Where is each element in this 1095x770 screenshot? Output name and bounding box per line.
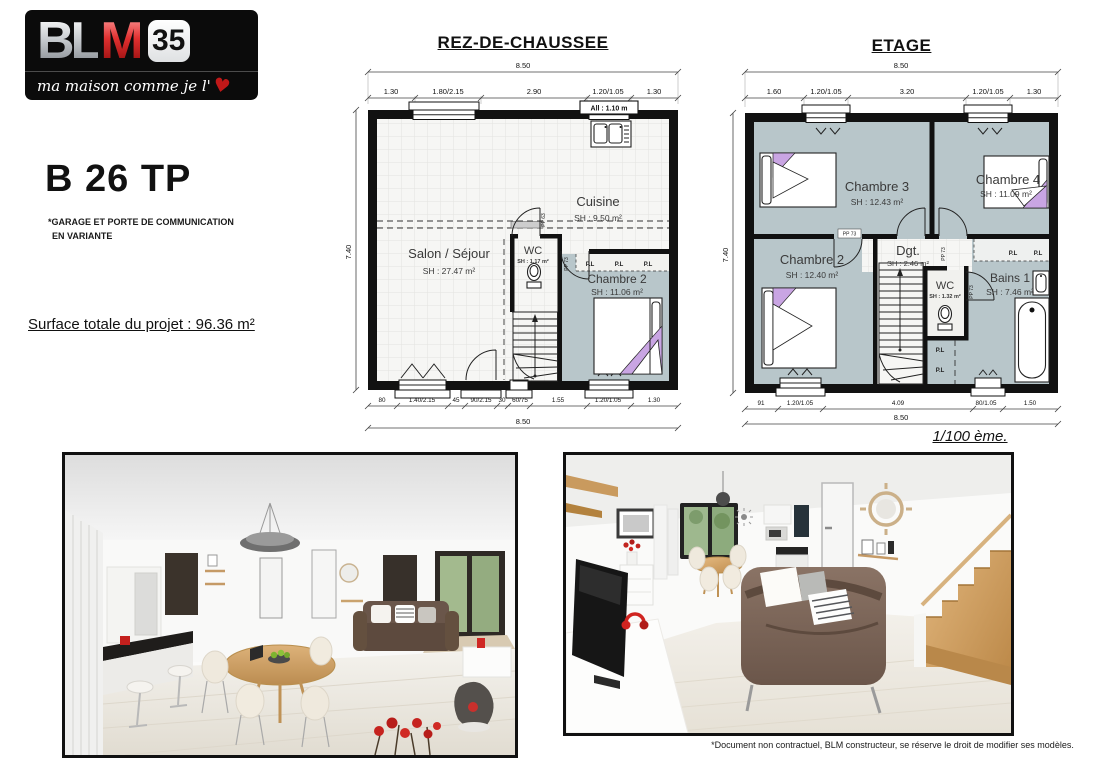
room-area-chambre3: SH : 12.43 m² <box>851 197 904 207</box>
door-label: PP 63 <box>541 213 547 227</box>
room-label-chambre3: Chambre 3 <box>845 179 909 194</box>
logo-letters-bl: BL <box>37 15 98 67</box>
dim-label: 7.40 <box>344 245 353 260</box>
logo-tagline: ma maison comme je l' ♥ <box>25 71 258 100</box>
room-area-wc-etage: SH : 1.32 m² <box>929 293 961 300</box>
door-label: PP 73 <box>843 232 857 238</box>
room-area-salon: SH : 27.47 m² <box>423 266 476 276</box>
small-window <box>794 505 809 537</box>
garden-window <box>680 503 738 559</box>
rdc-floor-plan: 8.50 1.30 1.80/2.15 2.90 1.20/1.05 1.30 … <box>336 58 688 448</box>
door-label: PP 73 <box>941 247 947 261</box>
interior-render-living-stairs <box>563 452 1014 736</box>
etage-dim-bottom: 91 1.20/1.05 4.09 80/1.05 1.50 8.50 <box>742 400 1061 427</box>
dim-label: 1.20/1.05 <box>810 87 841 96</box>
variant-note-line2: EN VARIANTE <box>48 229 278 243</box>
door-label: PP 73 <box>969 285 975 299</box>
room-label-wc: WC <box>524 245 542 257</box>
placard-label: P.L <box>644 262 653 268</box>
toilet <box>527 264 541 289</box>
dim-label: 1.30 <box>648 397 661 404</box>
blm-logo: BLM 35 ma maison comme je l' ♥ <box>25 10 258 100</box>
dim-label: 1.30 <box>647 87 662 96</box>
placard-label: P.L <box>1009 251 1018 257</box>
etage-dim-top: 8.50 1.60 1.20/1.05 3.20 1.20/1.05 1.30 <box>742 61 1061 107</box>
round-mirror <box>340 564 358 582</box>
picture-frame <box>618 510 654 537</box>
dim-label: 2.90 <box>527 87 542 96</box>
rdc-dim-left: 7.40 <box>344 107 359 393</box>
dim-label: 80 <box>378 397 386 404</box>
curtains <box>654 505 678 579</box>
dim-label: 1.30 <box>1027 87 1042 96</box>
dim-label: 1.50 <box>1024 400 1037 407</box>
room-area-wc: SH : 1.17 m² <box>517 258 549 265</box>
bed <box>594 298 662 374</box>
room-area-chambre2-etage: SH : 12.40 m² <box>786 270 839 280</box>
etage-plan-title: ETAGE <box>745 36 1058 56</box>
bathtub <box>1015 298 1049 382</box>
rdc-plan-title: REZ-DE-CHAUSSEE <box>368 33 678 53</box>
interior-door-white-1 <box>260 558 282 618</box>
placard-label: P.L <box>936 368 945 374</box>
plan-sheet: BLM 35 ma maison comme je l' ♥ B 26 TP *… <box>0 0 1095 770</box>
room-area-dgt: SH : 2.46 m² <box>887 259 930 268</box>
room-label-dgt: Dgt. <box>896 243 920 258</box>
dim-label: 45 <box>452 397 460 404</box>
sofa <box>353 601 459 651</box>
logo-letter-m: M <box>100 15 139 67</box>
allege-label: All : 1.10 m <box>591 106 628 113</box>
bains-closet <box>974 239 1049 261</box>
variant-note: *GARAGE ET PORTE DE COMMUNICATION EN VAR… <box>48 215 278 244</box>
etage-toilet <box>938 306 952 331</box>
blm-logo-wordmark: BLM 35 <box>25 10 258 71</box>
placard-label: P.L <box>936 348 945 354</box>
red-vase <box>477 638 485 648</box>
dim-label: 91 <box>757 400 765 407</box>
room-label-chambre4: Chambre 4 <box>976 172 1040 187</box>
room-label-salon: Salon / Séjour <box>408 246 490 261</box>
rdc-dim-bottom: 80 1.40/2.15 45 90/2.15 30 60/75 1.55 1.… <box>365 397 681 431</box>
dim-label: 1.20/1.05 <box>972 87 1003 96</box>
heart-icon: ♥ <box>211 74 232 99</box>
bed-chambre3 <box>760 153 836 207</box>
logo-tagline-text: ma maison comme je l' <box>37 77 211 95</box>
kitchen-sink <box>591 121 631 147</box>
etage-dim-left: 7.40 <box>721 110 736 396</box>
dim-label: 3.20 <box>900 87 915 96</box>
room-area-chambre2: SH : 11.06 m² <box>591 287 643 297</box>
model-title: B 26 TP <box>45 158 191 201</box>
render1-scene <box>65 455 515 755</box>
etage-floor-plan: 8.50 1.60 1.20/1.05 3.20 1.20/1.05 1.30 … <box>712 58 1080 450</box>
dim-label: 1.20/1.05 <box>787 400 814 407</box>
dim-label: 7.40 <box>721 248 730 263</box>
dim-label: 8.50 <box>894 61 909 70</box>
render2-scene <box>566 455 1011 733</box>
dim-label: 1.30 <box>384 87 399 96</box>
dim-label: 1.80/2.15 <box>432 87 463 96</box>
pillow-white <box>760 567 802 607</box>
room-label-wc-etage: WC <box>936 280 954 292</box>
dim-label: 1.55 <box>552 397 565 404</box>
room-label-chambre2-etage: Chambre 2 <box>780 252 844 267</box>
washbasin <box>1033 271 1049 295</box>
footer-disclaimer: *Document non contractuel, BLM construct… <box>695 740 1090 750</box>
dim-label: 8.50 <box>516 61 531 70</box>
room-label-bains: Bains 1 <box>990 271 1030 285</box>
interior-door-white-2 <box>312 550 336 618</box>
dim-label: 8.50 <box>894 413 909 422</box>
placard-label: P.L <box>586 262 595 268</box>
placard-label: P.L <box>615 262 624 268</box>
room-area-chambre4: SH : 11.09 m² <box>980 189 1032 199</box>
bed-chambre2-etage <box>762 288 836 368</box>
wall-clock <box>735 508 753 526</box>
room-area-bains: SH : 7.46 m² <box>986 287 1034 297</box>
logo-dept-badge: 35 <box>148 20 190 62</box>
surface-total: Surface totale du projet : 96.36 m² <box>28 316 255 333</box>
placard-label: P.L <box>1034 251 1043 257</box>
interior-render-living-dining <box>62 452 518 758</box>
variant-note-line1: *GARAGE ET PORTE DE COMMUNICATION <box>48 215 278 229</box>
dim-label: 1.60 <box>767 87 782 96</box>
door-label: PP 73 <box>564 257 570 271</box>
room-area-cuisine: SH : 9.50 m² <box>574 213 622 223</box>
hall-door <box>822 483 853 569</box>
room-label-chambre2: Chambre 2 <box>587 272 647 286</box>
dim-label: 8.50 <box>516 417 531 426</box>
dim-label: 4.09 <box>892 400 905 407</box>
dim-label: 80/1.05 <box>975 400 997 407</box>
dim-label: 1.20/1.05 <box>592 87 623 96</box>
room-label-cuisine: Cuisine <box>576 194 619 209</box>
rdc-dim-top: 8.50 1.30 1.80/2.15 2.90 1.20/1.05 1.30 <box>365 61 681 104</box>
scale-note: 1/100 ème. <box>880 428 1060 445</box>
interior-door-dark-1 <box>165 553 198 615</box>
